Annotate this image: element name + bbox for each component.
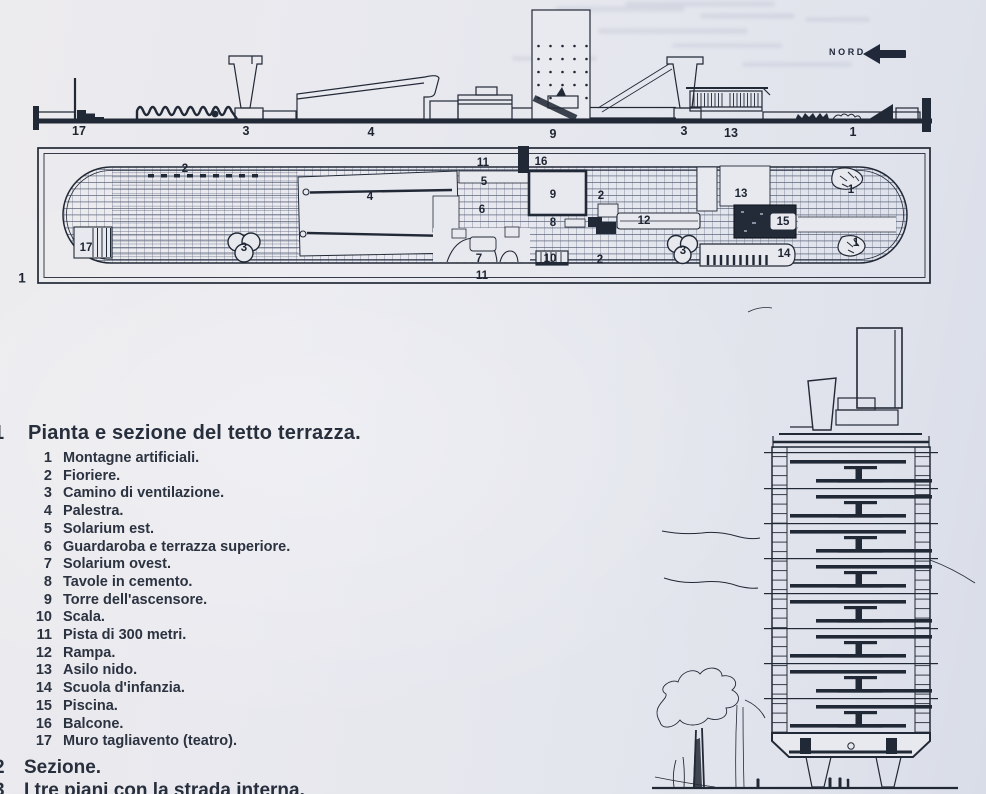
clipped-caption-number: 3: [0, 779, 24, 794]
plan-label: 2: [597, 254, 603, 266]
legend-item-label: Muro tagliavento (teatro).: [63, 733, 237, 751]
legend-item: 10Scala.: [0, 609, 460, 627]
artificial-mountains-west: [137, 107, 237, 119]
legend-item: 17Muro tagliavento (teatro).: [0, 733, 460, 751]
clipped-figure-number: 1: [0, 421, 7, 445]
plan-label: 12: [638, 215, 651, 227]
legend-item-number: 9: [0, 592, 63, 610]
legend-item: 15Piscina.: [0, 698, 460, 716]
terrace-structures: [430, 87, 532, 119]
legend-item: 1Montagne artificiali.: [0, 450, 460, 468]
legend-item: 11Pista di 300 metri.: [0, 627, 460, 645]
plan-label: 8: [550, 217, 556, 229]
plan-label: 3: [241, 242, 247, 254]
legend-item-label: Scala.: [63, 609, 105, 627]
plan-label: 15: [777, 216, 790, 228]
legend-caption: 3 I tre piani con la strada interna.: [0, 779, 460, 794]
legend-item-number: 11: [0, 627, 63, 645]
legend-item-number: 13: [0, 662, 63, 680]
legend-item-label: Fioriere.: [63, 468, 120, 486]
legend-item-number: 15: [0, 698, 63, 716]
legend-item-number: 14: [0, 680, 63, 698]
balcony-plan: [518, 146, 529, 173]
nursery-school: [686, 88, 770, 111]
legend-item-number: 17: [0, 733, 63, 751]
legend-item-label: Scuola d'infanzia.: [63, 680, 185, 698]
legend-item-number: 5: [0, 521, 63, 539]
legend-item-number: 2: [0, 468, 63, 486]
section-left-cap: [33, 106, 39, 130]
legend-item: 16Balcone.: [0, 716, 460, 734]
legend-item-label: Guardaroba e terrazza superiore.: [63, 539, 290, 557]
legend-item: 7Solarium ovest.: [0, 556, 460, 574]
elevator-tower: [532, 10, 590, 119]
legend-item-label: Montagne artificiali.: [63, 450, 199, 468]
clipped-caption-number: 2: [0, 756, 24, 780]
section-label: 3: [243, 124, 250, 138]
legend-item: 2Fioriere.: [0, 468, 460, 486]
section-label: 9: [550, 127, 557, 141]
legend-item-number: 4: [0, 503, 63, 521]
legend-item: 12Rampa.: [0, 645, 460, 663]
north-arrow-icon: [863, 44, 880, 64]
plan-label: 13: [735, 188, 748, 200]
legend-item: 5Solarium est.: [0, 521, 460, 539]
windbreak-wall: [75, 78, 104, 119]
north-arrow-icon: [879, 50, 906, 58]
tree-sketch: [657, 668, 765, 787]
legend-caption-label: Sezione.: [24, 756, 101, 780]
plan-label: 1: [848, 184, 854, 196]
legend-item-number: 8: [0, 574, 63, 592]
building-section-drawing: [652, 308, 975, 789]
floor-slabs: [764, 452, 938, 728]
legend-item-label: Solarium ovest.: [63, 556, 171, 574]
section-label: 17: [72, 124, 86, 138]
book-page: NORD 17 3 4 9 3 13 1 1 2 17 3 4 11 5 16 …: [0, 0, 986, 794]
plan-label: 4: [367, 191, 373, 203]
legend-item-label: Pista di 300 metri.: [63, 627, 186, 645]
legend-item-label: Rampa.: [63, 645, 115, 663]
legend-caption-label: I tre piani con la strada interna.: [24, 779, 305, 794]
section-label: 3: [681, 124, 688, 138]
figure-number: 1: [18, 271, 26, 286]
legend-item-label: Asilo nido.: [63, 662, 137, 680]
legend-title: 1 Pianta e sezione del tetto terrazza.: [0, 421, 460, 446]
plan-label: 2: [182, 163, 188, 175]
legend-item-label: Balcone.: [63, 716, 123, 734]
legend-item-number: 6: [0, 539, 63, 557]
legend-item: 8Tavole in cemento.: [0, 574, 460, 592]
legend-item: 14Scuola d'infanzia.: [0, 680, 460, 698]
figure-legend: 1 Pianta e sezione del tetto terrazza. 1…: [0, 421, 460, 794]
legend-item-number: 1: [0, 450, 63, 468]
plan-label: 16: [535, 156, 548, 168]
legend-item-label: Tavole in cemento.: [63, 574, 192, 592]
planters-row: [148, 174, 258, 178]
plan-label: 10: [544, 253, 557, 265]
legend-item: 9Torre dell'ascensore.: [0, 592, 460, 610]
roof-section-drawing: [33, 10, 932, 132]
legend-item-label: Piscina.: [63, 698, 118, 716]
plan-label: 14: [778, 248, 791, 260]
legend-item-label: Torre dell'ascensore.: [63, 592, 207, 610]
legend-item-label: Palestra.: [63, 503, 123, 521]
people-figures: [756, 777, 849, 787]
pilotis-base: [772, 733, 930, 787]
north-label: NORD: [829, 47, 866, 57]
plan-label: 11: [476, 270, 488, 282]
section-label: 13: [724, 126, 738, 140]
plan-label: 17: [80, 242, 93, 254]
plan-label: 7: [476, 253, 482, 265]
legend-item: 6Guardaroba e terrazza superiore.: [0, 539, 460, 557]
plan-label: 6: [479, 204, 485, 216]
legend-item-number: 16: [0, 716, 63, 734]
legend-item: 3Camino di ventilazione.: [0, 485, 460, 503]
legend-title-text: Pianta e sezione del tetto terrazza.: [28, 422, 361, 444]
legend-item-number: 10: [0, 609, 63, 627]
plan-label: 11: [477, 157, 489, 169]
nursery-plan: [720, 166, 770, 206]
plan-label: 2: [598, 190, 604, 202]
legend-item-number: 3: [0, 485, 63, 503]
legend-item-number: 12: [0, 645, 63, 663]
section-label: 1: [850, 125, 857, 139]
section-right-cap: [922, 98, 931, 132]
legend-item-number: 7: [0, 556, 63, 574]
plan-label: 1: [853, 237, 859, 249]
legend-item: 13Asilo nido.: [0, 662, 460, 680]
gymnasium: [297, 76, 439, 119]
legend-caption: 2 Sezione.: [0, 756, 460, 780]
plan-label: 3: [680, 245, 686, 257]
elevator-tower-plan: [529, 171, 586, 215]
section-label: 4: [368, 125, 375, 139]
legend-item-label: Camino di ventilazione.: [63, 485, 224, 503]
legend-item: 4Palestra.: [0, 503, 460, 521]
plan-label: 9: [550, 189, 556, 201]
stack-top: [808, 378, 836, 430]
plan-label: 5: [481, 176, 487, 188]
legend-item-label: Solarium est.: [63, 521, 154, 539]
